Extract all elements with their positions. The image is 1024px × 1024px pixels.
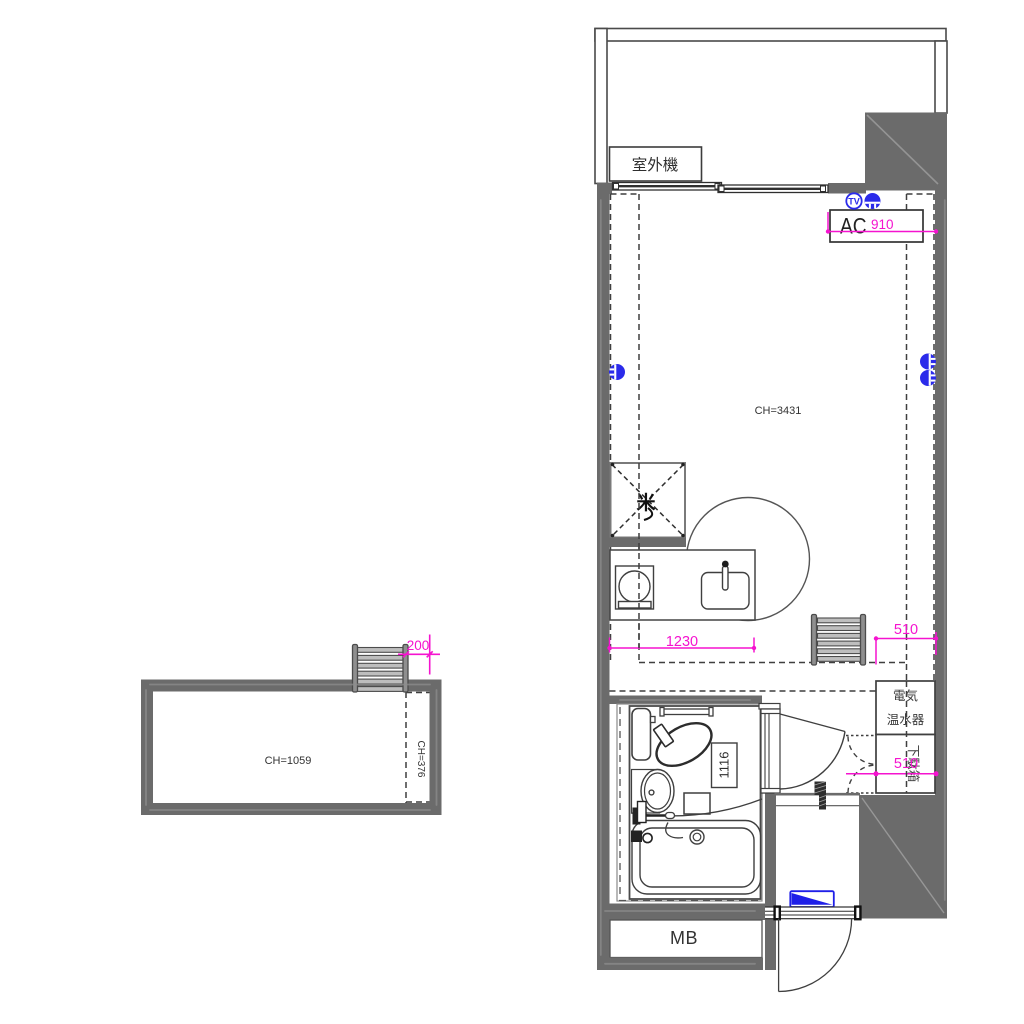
svg-text:CH=3431: CH=3431 xyxy=(755,405,802,417)
svg-text:MB: MB xyxy=(670,928,698,948)
svg-text:1230: 1230 xyxy=(666,634,698,650)
svg-text:510: 510 xyxy=(894,622,918,638)
svg-text:電気: 電気 xyxy=(893,688,918,703)
svg-text:室外機: 室外機 xyxy=(632,156,679,174)
svg-text:CH=1059: CH=1059 xyxy=(265,755,312,767)
svg-text:910: 910 xyxy=(871,217,894,232)
svg-text:TV: TV xyxy=(848,197,860,207)
svg-text:200: 200 xyxy=(407,638,430,653)
svg-text:1116: 1116 xyxy=(717,752,732,779)
svg-text:CH=376: CH=376 xyxy=(415,741,426,778)
svg-text:温水器: 温水器 xyxy=(887,713,925,727)
svg-text:AC: AC xyxy=(840,214,867,239)
